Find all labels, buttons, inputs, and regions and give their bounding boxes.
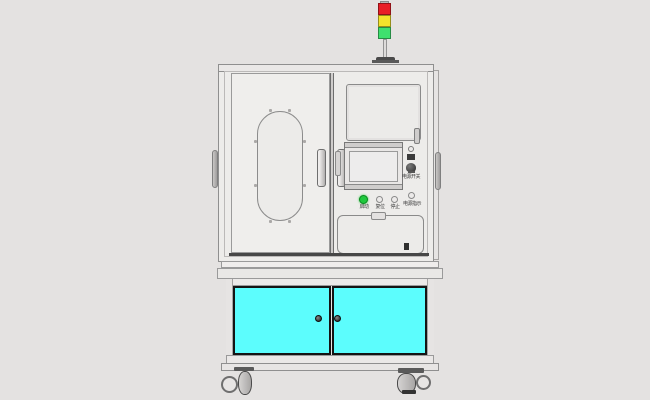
indicator-button bbox=[408, 192, 415, 199]
tower-base-flange bbox=[372, 60, 399, 63]
window-clip bbox=[303, 140, 306, 143]
cabinet-sill bbox=[229, 253, 429, 256]
window-clip bbox=[288, 109, 291, 112]
mid-frame-rail-lower bbox=[217, 268, 443, 279]
service-panel-tab bbox=[371, 212, 386, 220]
window-clip bbox=[288, 220, 291, 223]
caster-wheel bbox=[238, 371, 252, 395]
top-window-handle bbox=[414, 128, 420, 144]
reset-button-label: 复位 bbox=[372, 204, 388, 210]
start-button-label: 启动 bbox=[356, 204, 372, 210]
power-switch-label: 电源开关 bbox=[396, 174, 426, 180]
window-clip bbox=[303, 184, 306, 187]
mid-frame-rail-upper bbox=[221, 261, 439, 268]
stop-button bbox=[391, 196, 398, 203]
screen-display bbox=[349, 151, 398, 182]
caster-foot-pad bbox=[402, 390, 416, 394]
power-socket-icon bbox=[407, 154, 415, 160]
caster-swivel-ring bbox=[221, 376, 238, 393]
caster-plate bbox=[398, 368, 424, 373]
window-clip bbox=[254, 140, 257, 143]
window-clip bbox=[269, 220, 272, 223]
power-switch-base bbox=[408, 171, 415, 173]
screen-side-handle bbox=[335, 151, 341, 176]
door-handle-left bbox=[317, 149, 326, 187]
lower-cabinet-left-post bbox=[226, 279, 233, 365]
hmi-screen bbox=[344, 142, 403, 190]
screen-bottom-bezel bbox=[345, 184, 402, 189]
side-handle-right bbox=[435, 152, 441, 190]
tower-pole bbox=[383, 39, 387, 59]
door-knob-left bbox=[315, 315, 322, 322]
door-divider bbox=[330, 73, 334, 253]
window-clip bbox=[254, 184, 257, 187]
power-indicator-lamp-icon bbox=[408, 146, 414, 152]
door-knob-right bbox=[334, 315, 341, 322]
top-window bbox=[346, 84, 421, 141]
window-clip bbox=[269, 109, 272, 112]
machine-illustration: 电源开关 启动 复位 停止 电源指示 bbox=[0, 0, 650, 400]
service-panel-latch bbox=[404, 243, 409, 250]
cabinet-door-right bbox=[332, 286, 427, 355]
tower-segment-green-icon bbox=[378, 27, 391, 39]
lower-cabinet-right-post bbox=[427, 279, 434, 365]
caster-swivel-ring bbox=[416, 375, 431, 390]
lower-cabinet-top-rail bbox=[233, 279, 427, 286]
service-panel bbox=[337, 215, 424, 254]
tower-segment-red-icon bbox=[378, 3, 391, 15]
tower-segment-yellow-icon bbox=[378, 15, 391, 27]
side-handle-left bbox=[212, 150, 218, 188]
screen-top-bezel bbox=[345, 143, 402, 148]
start-button bbox=[359, 195, 368, 204]
inspection-window bbox=[257, 111, 303, 221]
reset-button bbox=[376, 196, 383, 203]
indicator-button-label: 电源指示 bbox=[398, 201, 426, 207]
